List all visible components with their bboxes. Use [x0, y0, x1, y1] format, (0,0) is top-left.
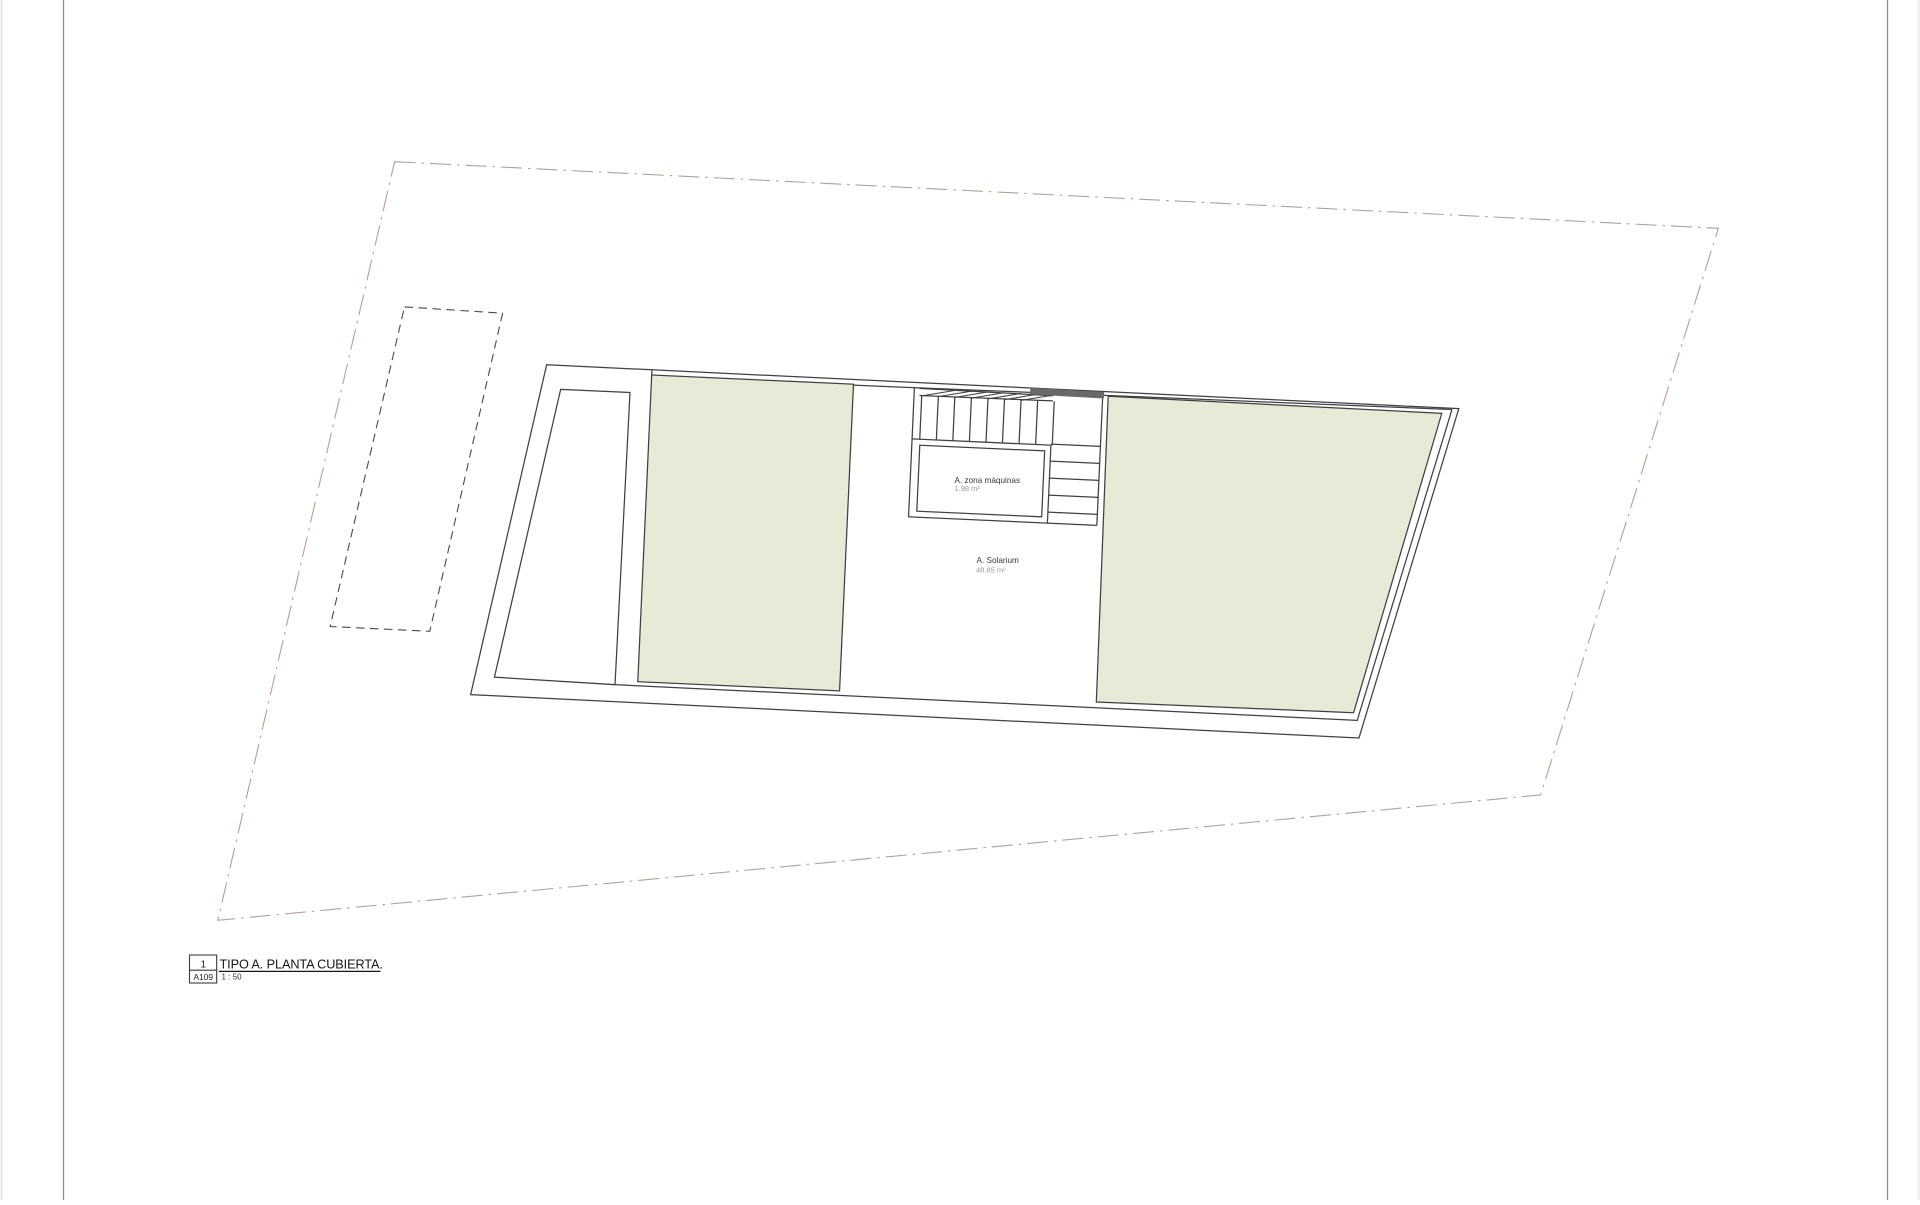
svg-text:1 : 50: 1 : 50	[222, 973, 243, 982]
svg-text:48.85 m²: 48.85 m²	[976, 566, 1006, 575]
svg-text:A. Solarium: A. Solarium	[977, 556, 1019, 565]
svg-text:1: 1	[201, 960, 207, 971]
svg-text:TIPO A. PLANTA CUBIERTA.: TIPO A. PLANTA CUBIERTA.	[220, 957, 383, 971]
svg-text:1.98 m²: 1.98 m²	[955, 484, 981, 493]
svg-text:A109: A109	[194, 972, 214, 982]
